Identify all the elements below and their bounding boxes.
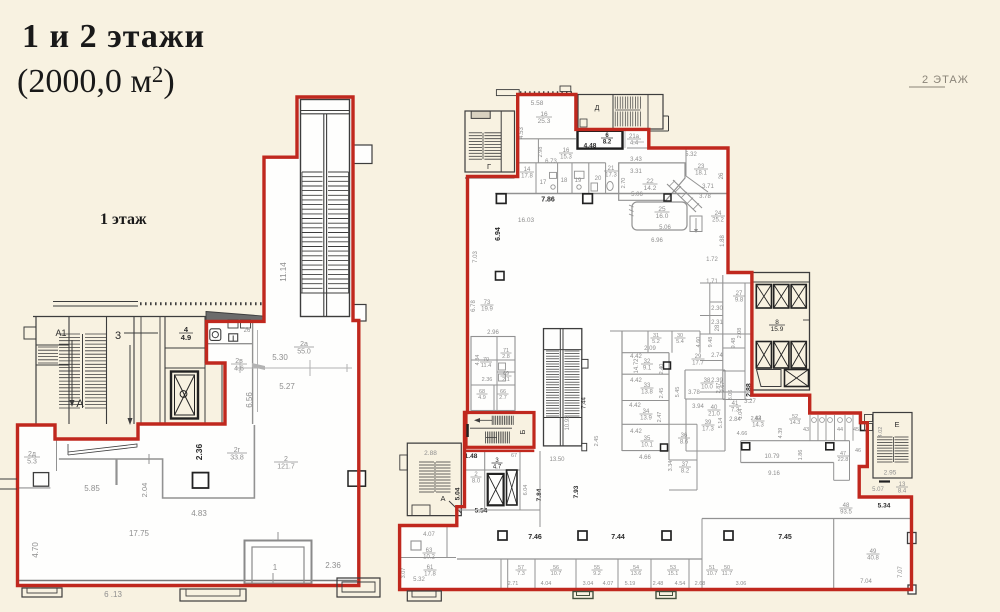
svg-text:А1: А1 [55,328,66,338]
svg-text:15.1: 15.1 [668,571,679,577]
svg-text:13.9: 13.9 [640,416,652,422]
svg-text:2.36: 2.36 [194,443,204,460]
svg-text:4.66: 4.66 [639,455,651,461]
svg-text:10.93: 10.93 [565,415,571,431]
svg-text:10.7: 10.7 [707,571,718,577]
svg-text:2.36: 2.36 [325,561,341,570]
svg-text:7.46: 7.46 [528,534,542,541]
svg-text:1 этаж: 1 этаж [100,211,147,228]
svg-text:13.50: 13.50 [549,457,565,463]
svg-text:3.78: 3.78 [688,390,700,396]
svg-text:14.3: 14.3 [790,420,801,426]
svg-text:2.45: 2.45 [659,388,665,399]
svg-text:5.04: 5.04 [455,487,462,500]
svg-text:2.36: 2.36 [482,377,493,383]
svg-text:8.6: 8.6 [680,440,689,446]
svg-text:4.39: 4.39 [778,428,784,439]
svg-text:6.96: 6.96 [651,238,663,244]
svg-text:10.0: 10.0 [701,385,713,391]
svg-text:121.7: 121.7 [277,464,295,471]
svg-text:5.30: 5.30 [272,353,288,362]
svg-text:11.14: 11.14 [279,262,288,282]
svg-text:2.04: 2.04 [140,483,149,498]
svg-text:14.3: 14.3 [752,423,764,429]
svg-text:8.06: 8.06 [728,390,734,401]
svg-text:2.98: 2.98 [538,147,544,158]
svg-text:16.0: 16.0 [656,213,669,220]
svg-text:4.70: 4.70 [31,542,40,558]
svg-text:(2000,0 м2): (2000,0 м2) [17,62,175,100]
svg-text:5.45: 5.45 [675,387,681,398]
svg-text:5.27: 5.27 [279,382,295,391]
svg-text:5.4: 5.4 [676,339,684,345]
svg-text:45: 45 [853,427,859,433]
svg-text:3.31: 3.31 [630,169,642,175]
svg-text:4.84: 4.84 [475,355,481,366]
svg-text:11.4: 11.4 [481,363,491,369]
svg-text:55.0: 55.0 [297,349,311,356]
svg-text:5.34: 5.34 [878,503,891,510]
svg-text:22.8: 22.8 [838,457,849,463]
svg-text:4.07: 4.07 [603,581,614,587]
svg-text:8.2: 8.2 [603,140,612,146]
svg-text:10.1: 10.1 [641,443,653,449]
svg-text:3.94: 3.94 [692,404,704,410]
svg-text:13.8: 13.8 [641,390,653,396]
svg-text:10.79: 10.79 [764,454,780,460]
svg-text:5.14: 5.14 [718,418,724,429]
svg-text:9.8: 9.8 [735,298,744,304]
svg-text:17: 17 [540,180,547,186]
svg-text:2.48: 2.48 [653,581,664,587]
svg-text:2.88: 2.88 [424,450,437,457]
svg-text:4.42: 4.42 [629,403,641,409]
svg-text:17.3: 17.3 [702,427,714,433]
svg-text:19: 19 [575,178,582,184]
svg-text:25.2: 25.2 [712,218,724,224]
svg-text:5.3: 5.3 [27,459,37,466]
svg-text:15.3: 15.3 [560,155,572,161]
svg-text:44: 44 [837,427,843,433]
svg-text:2.47: 2.47 [657,412,663,423]
svg-text:6.94: 6.94 [495,227,502,241]
svg-text:Г: Г [487,162,491,171]
svg-text:3.78: 3.78 [699,194,711,200]
svg-text:3: 3 [115,330,121,342]
svg-text:4.9: 4.9 [181,333,191,342]
svg-text:17.8: 17.8 [424,572,436,578]
svg-text:8.2: 8.2 [681,469,690,475]
svg-text:18: 18 [561,178,568,184]
svg-text:21.0: 21.0 [708,412,720,418]
svg-text:1.72: 1.72 [706,257,718,263]
svg-text:4.4: 4.4 [630,141,639,147]
svg-text:5.19: 5.19 [625,581,636,587]
svg-text:5.32: 5.32 [413,577,425,583]
svg-text:7.04: 7.04 [860,579,872,585]
svg-text:2.09: 2.09 [644,346,656,352]
svg-text:7.93: 7.93 [573,485,580,498]
svg-text:3.06: 3.06 [736,581,747,587]
svg-text:17.8: 17.8 [521,174,533,180]
svg-text:6.73: 6.73 [545,159,557,165]
svg-text:20: 20 [595,176,602,182]
svg-text:2.95: 2.95 [884,470,897,477]
svg-text:7.44: 7.44 [611,534,625,541]
svg-text:5.06: 5.06 [631,192,643,198]
svg-text:6.04: 6.04 [523,485,529,496]
svg-text:3.04: 3.04 [583,581,594,587]
svg-text:4.04: 4.04 [541,581,552,587]
svg-text:9.48: 9.48 [731,338,737,349]
svg-text:26: 26 [719,172,725,179]
svg-text:1.88: 1.88 [720,235,726,247]
svg-text:14.72: 14.72 [634,358,640,374]
svg-text:6.78: 6.78 [471,300,477,312]
svg-text:6.56: 6.56 [245,392,254,408]
svg-text:9.2: 9.2 [593,571,601,577]
svg-text:16.03: 16.03 [518,217,535,224]
svg-text:2.8: 2.8 [502,354,510,360]
svg-text:9.16: 9.16 [768,471,780,477]
svg-text:Б: Б [518,429,527,434]
svg-text:4.02: 4.02 [878,427,884,438]
svg-text:7.07: 7.07 [898,566,904,578]
svg-text:4.6: 4.6 [234,366,244,373]
svg-text:2.7: 2.7 [499,395,507,401]
svg-text:5.2: 5.2 [652,339,660,345]
svg-text:93.5: 93.5 [840,510,852,516]
svg-text:4.60: 4.60 [696,337,702,348]
svg-text:43: 43 [803,427,809,433]
svg-text:2.96: 2.96 [487,330,499,336]
svg-text:9.48: 9.48 [708,337,714,348]
svg-text:2.68: 2.68 [695,581,706,587]
svg-text:2.84: 2.84 [751,416,762,422]
svg-text:4.9: 4.9 [478,395,486,401]
svg-text:4.07: 4.07 [423,532,435,538]
svg-text:5.32: 5.32 [685,152,697,158]
svg-text:Д: Д [595,105,600,112]
svg-text:7.3: 7.3 [517,571,525,577]
svg-text:1: 1 [273,563,278,572]
svg-text:3.34: 3.34 [668,461,674,472]
svg-text:5.58: 5.58 [531,100,544,107]
svg-text:1 и 2 этажи: 1 и 2 этажи [22,18,205,55]
svg-text:15.9: 15.9 [771,326,784,333]
svg-text:9.1: 9.1 [643,366,652,372]
svg-text:13.6: 13.6 [631,571,642,577]
svg-text:4.48: 4.48 [584,143,597,150]
svg-text:5.85: 5.85 [84,484,100,493]
svg-text:19.9: 19.9 [481,307,493,313]
svg-text:7.45: 7.45 [778,534,792,541]
svg-text:1.48: 1.48 [465,453,478,460]
svg-text:8.4: 8.4 [898,489,907,495]
svg-text:5.06: 5.06 [659,225,671,231]
svg-text:5.54: 5.54 [475,508,488,515]
svg-text:2.45: 2.45 [594,436,600,447]
svg-text:11.7: 11.7 [722,571,732,577]
svg-text:4.66: 4.66 [737,431,748,437]
svg-text:46: 46 [855,448,861,454]
svg-text:4.54: 4.54 [675,581,686,587]
svg-text:7.86: 7.86 [541,197,555,204]
svg-text:4.7: 4.7 [493,465,502,471]
svg-text:Е: Е [894,420,899,429]
svg-text:6 .13: 6 .13 [104,590,122,599]
svg-text:2.1: 2.1 [502,377,510,383]
svg-text:10.7: 10.7 [551,571,562,577]
svg-text:3.27: 3.27 [744,399,756,405]
svg-text:17.75: 17.75 [129,529,150,538]
svg-text:4.83: 4.83 [191,509,207,518]
svg-text:2 ЭТАЖ: 2 ЭТАЖ [922,74,969,86]
svg-text:4.53: 4.53 [519,127,525,139]
svg-text:7.44: 7.44 [582,397,588,409]
svg-text:4.42: 4.42 [630,429,642,435]
svg-text:1.86: 1.86 [798,450,804,461]
svg-text:18.1: 18.1 [695,171,707,177]
svg-text:3.43: 3.43 [630,157,642,163]
svg-text:2.71: 2.71 [508,581,519,587]
svg-text:25.3: 25.3 [538,118,551,125]
svg-text:17.3: 17.3 [605,173,617,179]
svg-text:67: 67 [511,453,517,459]
svg-text:2.87: 2.87 [716,383,722,394]
svg-text:2.08: 2.08 [737,328,743,339]
svg-text:40.8: 40.8 [867,556,879,562]
svg-text:А: А [440,494,445,503]
svg-text:33.8: 33.8 [230,455,244,462]
svg-text:А: А [76,398,84,410]
svg-text:1.71: 1.71 [706,279,718,285]
svg-text:2.30: 2.30 [711,306,723,312]
svg-text:7.03: 7.03 [473,251,479,263]
svg-text:2.70: 2.70 [621,178,627,189]
svg-text:14.2: 14.2 [644,185,657,192]
svg-text:26: 26 [244,328,251,334]
svg-text:5.07: 5.07 [872,487,884,493]
svg-text:8.0: 8.0 [472,479,481,485]
svg-text:3.07: 3.07 [401,568,407,579]
svg-text:2.74: 2.74 [711,353,723,359]
svg-text:4.42: 4.42 [630,378,642,384]
svg-text:1.04: 1.04 [738,409,744,420]
svg-text:17.7: 17.7 [692,361,704,367]
svg-text:28: 28 [715,324,721,331]
